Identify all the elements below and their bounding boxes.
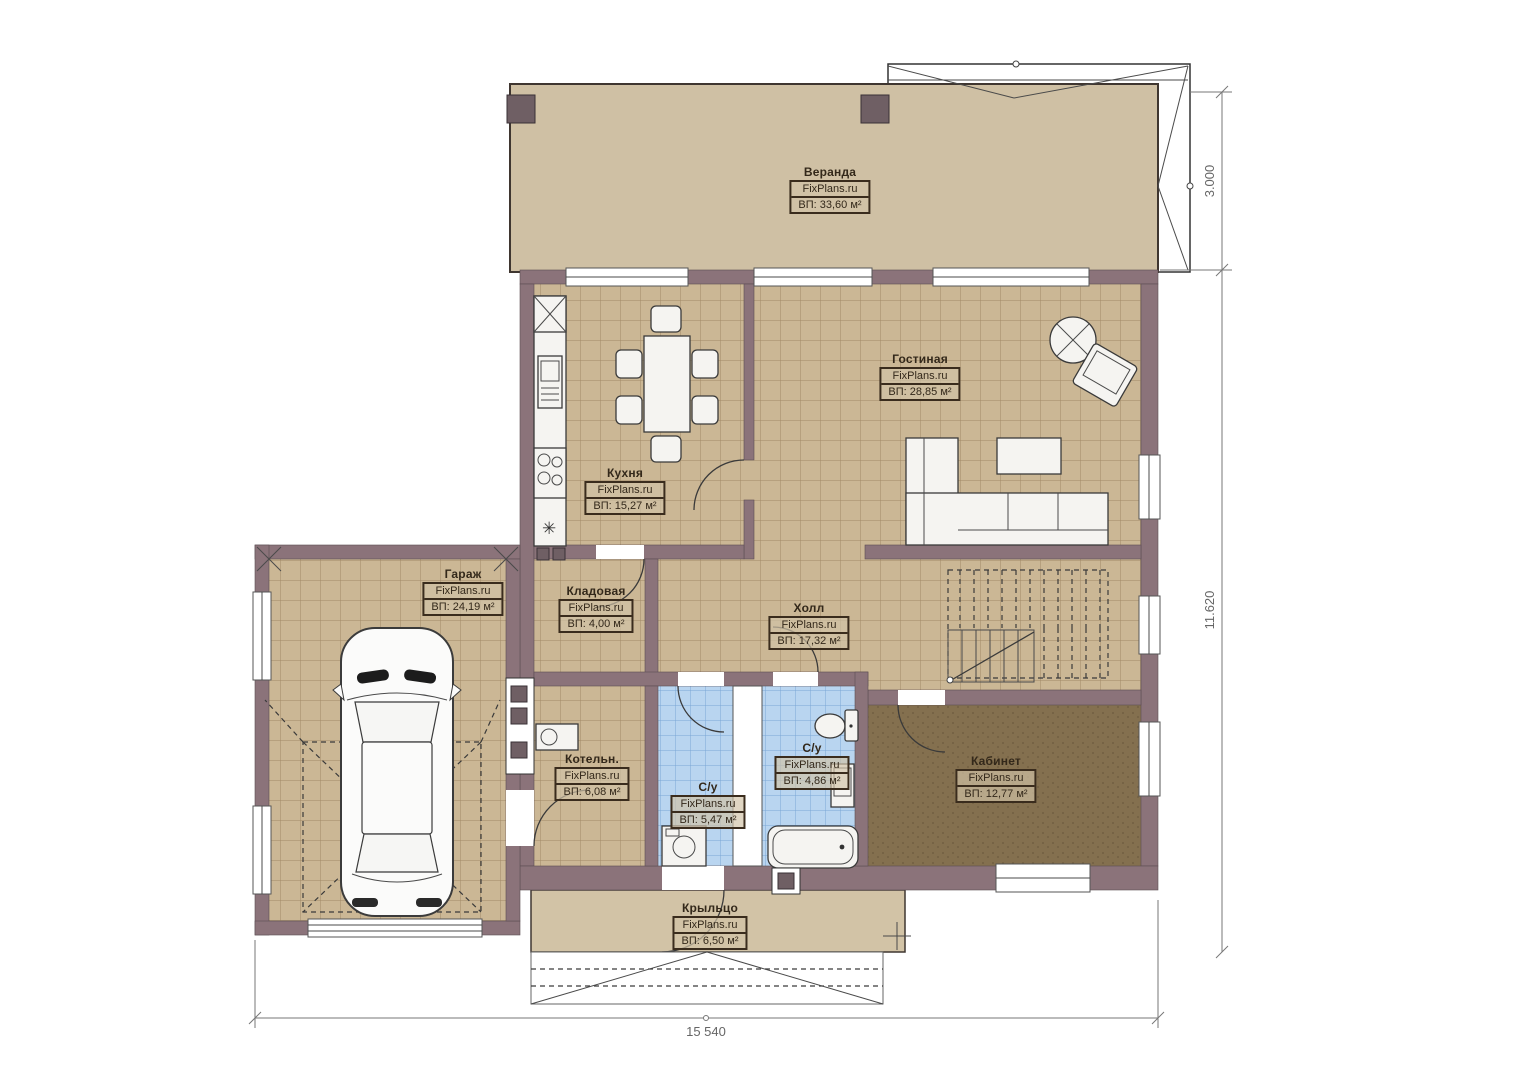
boiler-unit-icon bbox=[536, 724, 578, 750]
washing-machine-icon bbox=[662, 826, 706, 866]
room-label-garazh: Гараж FixPlans.ru ВП: 24,19 м² bbox=[422, 567, 503, 616]
sink-icon: ✳ bbox=[542, 519, 556, 538]
area-box: FixPlans.ru ВП: 12,77 м² bbox=[955, 769, 1036, 803]
room-name: Кухня bbox=[584, 466, 665, 480]
chimney-stack bbox=[506, 678, 534, 774]
watermark-text: FixPlans.ru bbox=[424, 584, 501, 598]
veranda-column-right bbox=[861, 95, 889, 123]
bathtub-icon bbox=[768, 826, 858, 868]
room-area: ВП: 17,32 м² bbox=[770, 632, 847, 648]
storage-door-opening bbox=[596, 545, 644, 559]
room-label-kabinet: Кабинет FixPlans.ru ВП: 12,77 м² bbox=[955, 754, 1036, 803]
room-name: Крыльцо bbox=[672, 901, 747, 915]
porch-steps bbox=[531, 952, 883, 1004]
room-label-su-2: С/у FixPlans.ru ВП: 4,86 м² bbox=[774, 741, 849, 790]
room-label-kuhnya: Кухня FixPlans.ru ВП: 15,27 м² bbox=[584, 466, 665, 515]
room-name: Кладовая bbox=[558, 584, 633, 598]
watermark-text: FixPlans.ru bbox=[586, 483, 663, 497]
room-area: ВП: 4,00 м² bbox=[560, 615, 631, 631]
room-area: ВП: 6,08 м² bbox=[556, 783, 627, 799]
room-area: ВП: 12,77 м² bbox=[957, 785, 1034, 801]
dim-house-height: 11.620 bbox=[1202, 591, 1217, 630]
coffee-table bbox=[997, 438, 1061, 474]
watermark-text: FixPlans.ru bbox=[556, 769, 627, 783]
area-box: FixPlans.ru ВП: 33,60 м² bbox=[789, 180, 870, 214]
bath2-door-opening bbox=[773, 672, 818, 686]
porch-door-opening bbox=[662, 866, 724, 890]
office-door-opening bbox=[898, 690, 945, 705]
room-name: С/у bbox=[774, 741, 849, 755]
area-box: FixPlans.ru ВП: 6,08 м² bbox=[554, 767, 629, 801]
watermark-text: FixPlans.ru bbox=[560, 601, 631, 615]
room-label-krylco: Крыльцо FixPlans.ru ВП: 6,50 м² bbox=[672, 901, 747, 950]
stove-icon bbox=[534, 448, 566, 498]
room-label-holl: Холл FixPlans.ru ВП: 17,32 м² bbox=[768, 601, 849, 650]
garage-door-opening bbox=[506, 790, 534, 846]
room-name: Гостиная bbox=[879, 352, 960, 366]
area-box: FixPlans.ru ВП: 15,27 м² bbox=[584, 481, 665, 515]
area-box: FixPlans.ru ВП: 4,00 м² bbox=[558, 599, 633, 633]
room-area: ВП: 28,85 м² bbox=[881, 383, 958, 399]
dim-veranda-depth: 3.000 bbox=[1202, 165, 1217, 198]
room-name: Гараж bbox=[422, 567, 503, 581]
floor-plan-canvas: ✳ bbox=[0, 0, 1528, 1080]
room-area: ВП: 33,60 м² bbox=[791, 196, 868, 212]
watermark-text: FixPlans.ru bbox=[770, 618, 847, 632]
room-name: С/у bbox=[670, 780, 745, 794]
room-name: Веранда bbox=[789, 165, 870, 179]
watermark-text: FixPlans.ru bbox=[881, 369, 958, 383]
area-box: FixPlans.ru ВП: 4,86 м² bbox=[774, 756, 849, 790]
room-area: ВП: 24,19 м² bbox=[424, 598, 501, 614]
room-area: ВП: 5,47 м² bbox=[672, 811, 743, 827]
area-box: FixPlans.ru ВП: 28,85 м² bbox=[879, 367, 960, 401]
room-label-veranda: Веранда FixPlans.ru ВП: 33,60 м² bbox=[789, 165, 870, 214]
room-label-kladovaya: Кладовая FixPlans.ru ВП: 4,00 м² bbox=[558, 584, 633, 633]
bath1-door-opening bbox=[678, 672, 724, 686]
room-name: Котельн. bbox=[554, 752, 629, 766]
veranda-column-left bbox=[507, 95, 535, 123]
area-box: FixPlans.ru ВП: 17,32 м² bbox=[768, 616, 849, 650]
oven-icon bbox=[538, 356, 562, 408]
room-name: Холл bbox=[768, 601, 849, 615]
watermark-text: FixPlans.ru bbox=[791, 182, 868, 196]
watermark-text: FixPlans.ru bbox=[776, 758, 847, 772]
room-label-gostinaya: Гостиная FixPlans.ru ВП: 28,85 м² bbox=[879, 352, 960, 401]
vent-shaft bbox=[733, 686, 762, 866]
room-label-kotelnaya: Котельн. FixPlans.ru ВП: 6,08 м² bbox=[554, 752, 629, 801]
dim-total-width: 15 540 bbox=[686, 1024, 726, 1039]
area-box: FixPlans.ru ВП: 6,50 м² bbox=[672, 916, 747, 950]
kitchen-counter: ✳ bbox=[534, 296, 566, 560]
area-box: FixPlans.ru ВП: 5,47 м² bbox=[670, 795, 745, 829]
room-label-su-1: С/у FixPlans.ru ВП: 5,47 м² bbox=[670, 780, 745, 829]
room-area: ВП: 6,50 м² bbox=[674, 932, 745, 948]
room-area: ВП: 15,27 м² bbox=[586, 497, 663, 513]
watermark-text: FixPlans.ru bbox=[672, 797, 743, 811]
watermark-text: FixPlans.ru bbox=[957, 771, 1034, 785]
area-box: FixPlans.ru ВП: 24,19 м² bbox=[422, 582, 503, 616]
floor-plan-drawing: ✳ bbox=[0, 0, 1528, 1080]
watermark-text: FixPlans.ru bbox=[674, 918, 745, 932]
room-name: Кабинет bbox=[955, 754, 1036, 768]
room-area: ВП: 4,86 м² bbox=[776, 772, 847, 788]
